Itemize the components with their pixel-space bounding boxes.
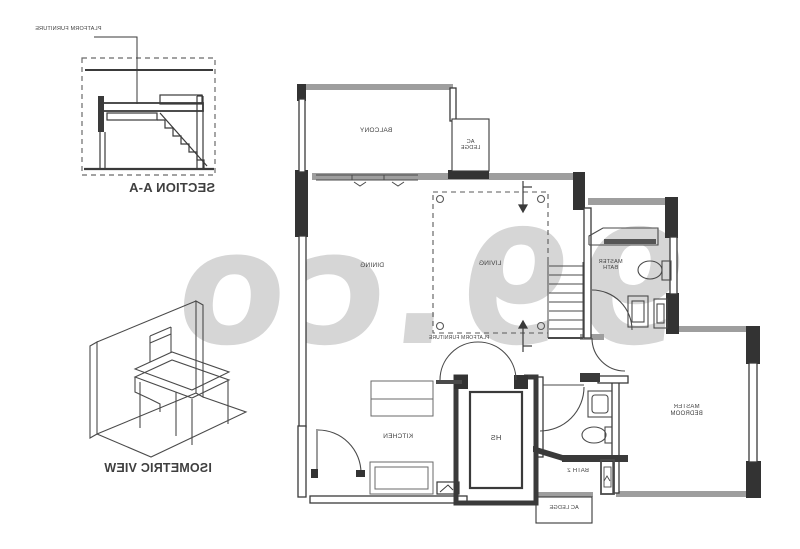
- room-label-living: LIVING: [460, 260, 520, 267]
- room-label-ac-ledge-top: AC LEDGE: [457, 139, 484, 152]
- staircase: [548, 262, 583, 338]
- room-label-master-bath: MASTER BATH: [595, 259, 626, 272]
- room-label-dining: DINING: [342, 262, 402, 269]
- room-label-balcony: BALCONY: [346, 127, 406, 134]
- room-label-ac-ledge-bottom: AC LEDGE: [535, 505, 593, 511]
- isometric-drawing: [90, 301, 246, 457]
- section-cut-markers: [519, 181, 532, 352]
- section-aa-drawing: [82, 37, 215, 175]
- floorplan-windows-walls: [298, 88, 757, 523]
- living-platform-annotation: PLATFORM FURNITURE: [424, 336, 494, 342]
- isometric-caption: ISOMETRIC VIEW: [88, 461, 228, 475]
- room-label-bath-2: BATH 2: [548, 468, 608, 475]
- master-bath-fixtures: [589, 228, 671, 328]
- room-label-master-bedroom: MASTER BEDROOM: [664, 404, 709, 418]
- room-label-kitchen: KITCHEN: [368, 433, 428, 440]
- room-label-hs: HS: [476, 434, 516, 443]
- section-platform-annotation: PLATFORM FURNITURE: [35, 26, 101, 32]
- section-caption: SECTION A-A: [122, 181, 222, 196]
- bath2-fixtures: [582, 391, 614, 494]
- floorplan-wall-caps: [295, 84, 761, 498]
- floorplan-image: 99.co: [0, 0, 800, 549]
